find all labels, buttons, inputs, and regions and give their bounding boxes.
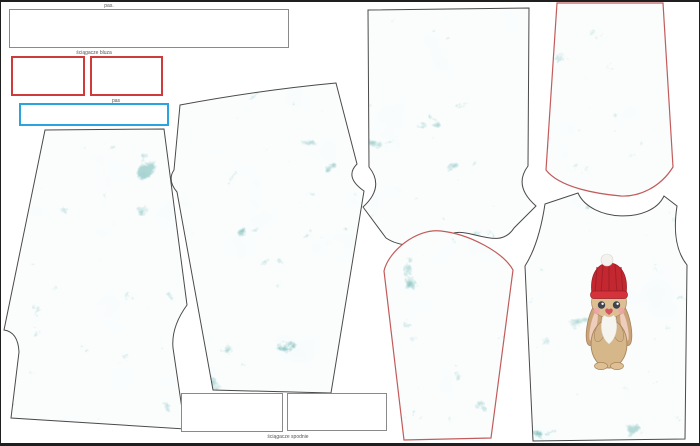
cuff-trousers-box-2: [287, 393, 387, 431]
bunny-eye-left-glint: [601, 303, 603, 305]
bunny-eye-right: [613, 301, 620, 308]
piece-pant-long-fill: [356, 2, 541, 257]
waistband-blue-box: [19, 103, 169, 126]
cuffs-trousers-label: ściągacze spodnie: [267, 434, 308, 440]
pattern-panel-sheet: pas. ściągacze bluza pas ściągacze spodn…: [0, 0, 700, 446]
bunny-foot-left: [595, 362, 608, 369]
piece-sleeve-right-fill: [541, 2, 681, 202]
piece-pant-leg-fill: [166, 80, 371, 398]
bunny-eye-left: [598, 301, 605, 308]
piece-shorts-fill: [1, 122, 196, 437]
cuff-sweatshirt-box-2: [90, 56, 163, 96]
bunny-eye-right-glint: [616, 303, 618, 305]
cuff-trousers-box-1: [181, 393, 283, 432]
bunny-hat-brim: [591, 291, 628, 299]
bunny-cheek-right: [618, 308, 624, 314]
cuff-sweatshirt-box-1: [11, 56, 85, 96]
bunny-cheek-left: [593, 308, 599, 314]
bunny-hat-pompom: [601, 254, 613, 266]
bunny-foot-right: [611, 362, 624, 369]
waistband-top-box: [9, 9, 289, 48]
